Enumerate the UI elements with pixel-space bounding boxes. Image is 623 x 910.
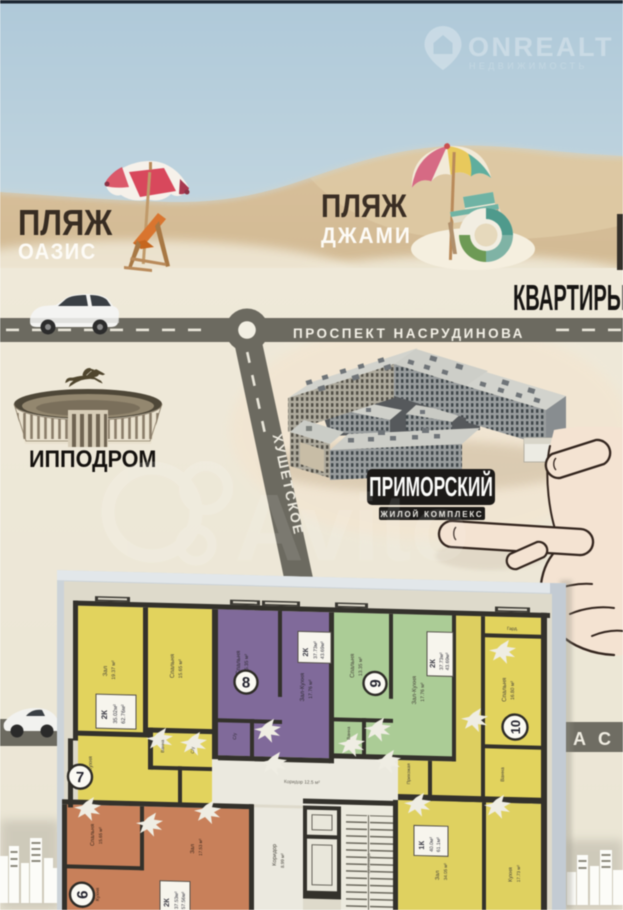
svg-text:2К: 2К: [428, 659, 437, 668]
svg-text:ДЖАМИ: ДЖАМИ: [321, 224, 412, 249]
svg-text:40.0м²: 40.0м²: [429, 837, 435, 852]
svg-text:НЕДВИЖИМОСТЬ: НЕДВИЖИМОСТЬ: [469, 61, 588, 71]
svg-text:57.56м²: 57.56м²: [181, 891, 187, 909]
svg-text:13.35 м²: 13.35 м²: [358, 657, 364, 676]
svg-text:Зал: Зал: [103, 665, 109, 676]
svg-text:15.65 м²: 15.65 м²: [178, 659, 184, 678]
svg-text:9: 9: [368, 679, 385, 688]
svg-text:37.73м²: 37.73м²: [313, 641, 319, 659]
svg-text:Ванна: Ванна: [160, 739, 165, 753]
svg-text:Зал: Зал: [190, 844, 196, 854]
svg-text:Зал: Зал: [435, 870, 441, 880]
svg-text:17.73 м²: 17.73 м²: [516, 864, 521, 882]
svg-text:62.76м²: 62.76м²: [121, 704, 127, 724]
svg-text:Коридор 12.5 м²: Коридор 12.5 м²: [284, 779, 320, 786]
svg-text:Спальня: Спальня: [502, 678, 508, 702]
svg-text:35.02м²: 35.02м²: [113, 704, 119, 724]
svg-text:Ванна: Ванна: [500, 767, 506, 782]
svg-text:Прихожая: Прихожая: [406, 763, 411, 785]
svg-text:Кухня: Кухня: [95, 887, 101, 901]
svg-text:Зал-Кухня: Зал-Кухня: [412, 676, 418, 705]
svg-text:10: 10: [508, 720, 523, 735]
svg-text:2К: 2К: [100, 710, 109, 720]
svg-text:8.99 м²: 8.99 м²: [280, 853, 285, 868]
svg-text:С/у: С/у: [232, 732, 237, 740]
svg-text:19.37 м²: 19.37 м²: [111, 660, 117, 679]
svg-text:34.05 м²: 34.05 м²: [443, 863, 448, 881]
svg-text:Спальня: Спальня: [170, 654, 176, 678]
svg-text:15.65 м²: 15.65 м²: [98, 827, 103, 845]
svg-text:А С П: А С П: [573, 729, 623, 749]
svg-text:6: 6: [75, 890, 92, 899]
svg-text:1К: 1К: [417, 840, 426, 849]
svg-text:Лестница: Лестница: [366, 853, 371, 873]
svg-text:17.76 м²: 17.76 м²: [308, 679, 314, 698]
svg-text:2К: 2К: [162, 898, 171, 907]
svg-text:2К: 2К: [301, 647, 310, 656]
svg-text:Спальня: Спальня: [90, 824, 96, 846]
svg-text:Ванна: Ванна: [346, 726, 351, 740]
svg-text:С/у: С/у: [190, 746, 195, 754]
svg-text:Кухня: Кухня: [508, 867, 514, 882]
svg-text:ПРОСПЕКТ НАСРУДИНОВА: ПРОСПЕКТ НАСРУДИНОВА: [293, 326, 525, 341]
svg-text:ПЛЯЖ: ПЛЯЖ: [18, 204, 113, 244]
svg-text:17.53 м²: 17.53 м²: [198, 838, 203, 856]
svg-text:Коридор: Коридор: [272, 844, 278, 866]
svg-text:43.69м²: 43.69м²: [320, 641, 326, 659]
svg-text:37.53м²: 37.53м²: [174, 891, 180, 909]
svg-text:61.1м²: 61.1м²: [436, 837, 442, 852]
svg-text:17.76 м²: 17.76 м²: [420, 682, 426, 701]
svg-text:Спальня: Спальня: [350, 654, 356, 678]
svg-text:ОАЗИС: ОАЗИС: [18, 240, 97, 264]
svg-text:7: 7: [76, 769, 84, 786]
svg-text:43.69м²: 43.69м²: [445, 652, 451, 670]
svg-text:ПЛЯЖ: ПЛЯЖ: [321, 189, 407, 224]
svg-text:ONREALT: ONREALT: [468, 32, 614, 62]
svg-text:Avito: Avito: [235, 475, 469, 581]
svg-text:16.80 м²: 16.80 м²: [510, 681, 516, 700]
svg-text:Гард.: Гард.: [507, 626, 518, 631]
svg-text:КВАРТИРЫ: КВАРТИРЫ: [513, 279, 623, 318]
svg-text:8: 8: [242, 674, 250, 691]
svg-text:Зал-Кухня: Зал-Кухня: [300, 673, 306, 702]
